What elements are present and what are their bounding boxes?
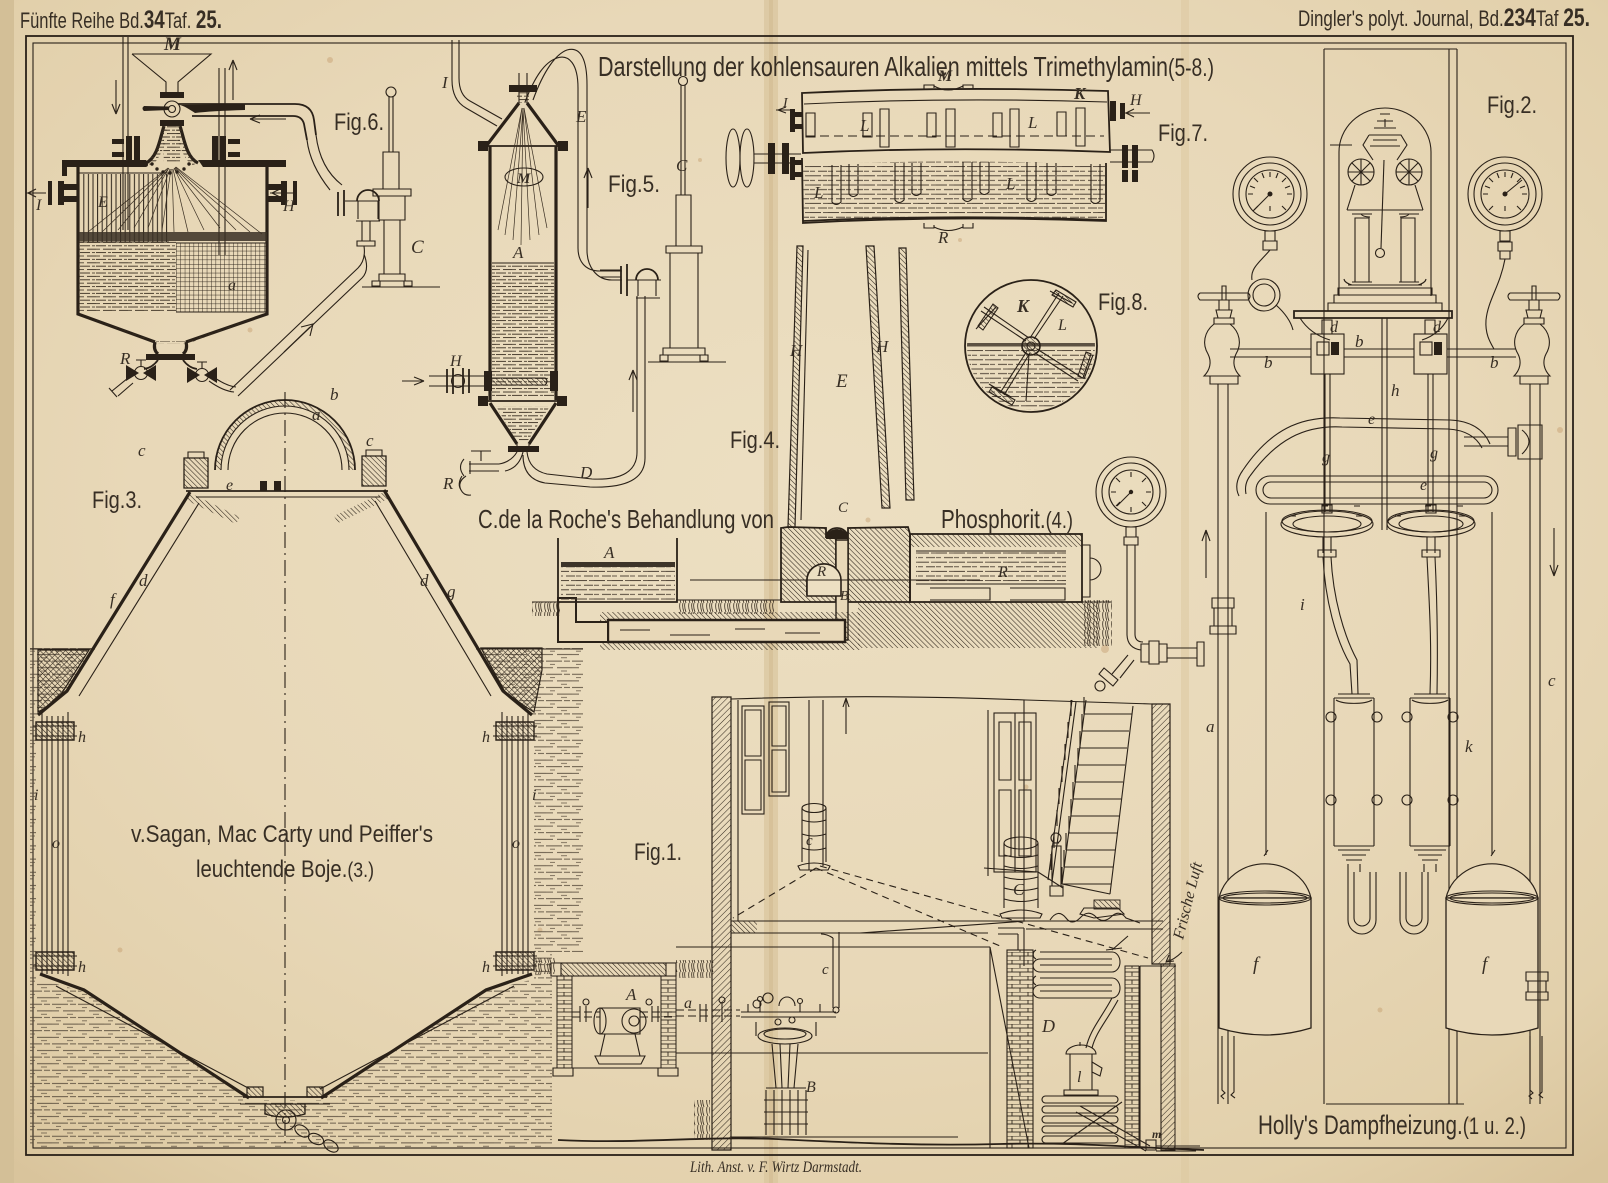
- svg-text:Fig.4.: Fig.4.: [730, 427, 780, 454]
- svg-text:L: L: [1027, 113, 1037, 132]
- svg-text:leuchtende Boje.(3.): leuchtende Boje.(3.): [196, 856, 374, 883]
- svg-text:Fig.2.: Fig.2.: [1487, 92, 1537, 119]
- svg-text:a: a: [312, 405, 321, 424]
- svg-text:e: e: [1368, 411, 1375, 428]
- svg-text:h: h: [78, 959, 86, 976]
- svg-text:a: a: [1206, 717, 1215, 736]
- svg-text:b: b: [1490, 353, 1499, 372]
- svg-text:c: c: [366, 431, 374, 450]
- svg-text:L: L: [1005, 174, 1015, 193]
- svg-text:R: R: [442, 474, 454, 493]
- svg-text:a: a: [684, 995, 692, 1012]
- svg-text:m: m: [1152, 1127, 1161, 1141]
- svg-text:R: R: [119, 349, 131, 368]
- svg-text:Fig.1.: Fig.1.: [634, 839, 682, 866]
- svg-text:d: d: [420, 571, 429, 590]
- svg-text:C: C: [676, 156, 688, 175]
- svg-text:Fünfte Reihe Bd.34Taf. 25.: Fünfte Reihe Bd.34Taf. 25.: [20, 6, 222, 34]
- svg-text:A: A: [603, 543, 615, 562]
- svg-text:Dingler's polyt. Journal, Bd.2: Dingler's polyt. Journal, Bd.234Taf 25.: [1298, 4, 1590, 32]
- svg-text:c: c: [1548, 671, 1556, 690]
- svg-text:h: h: [78, 729, 86, 746]
- svg-text:E: E: [97, 194, 108, 211]
- svg-text:k: k: [1465, 737, 1473, 756]
- svg-text:Darstellung der kohlensauren A: Darstellung der kohlensauren Alkalien mi…: [598, 51, 1214, 82]
- svg-text:c: c: [822, 962, 829, 978]
- svg-text:E: E: [835, 371, 848, 392]
- svg-text:i: i: [1300, 595, 1305, 614]
- svg-text:H: H: [875, 337, 890, 356]
- svg-text:b: b: [330, 385, 339, 404]
- svg-text:Fig.8.: Fig.8.: [1098, 289, 1148, 316]
- svg-text:E: E: [575, 107, 587, 126]
- svg-text:o: o: [52, 835, 60, 852]
- svg-text:i: i: [532, 787, 536, 804]
- svg-text:a: a: [228, 277, 236, 294]
- svg-text:H: H: [1129, 92, 1143, 109]
- svg-text:H: H: [282, 198, 296, 215]
- svg-text:L: L: [859, 116, 869, 135]
- svg-text:C.de la Roche's Behandlung von: C.de la Roche's Behandlung von: [478, 504, 774, 534]
- svg-text:A: A: [625, 985, 637, 1004]
- svg-text:Fig.3.: Fig.3.: [92, 487, 142, 514]
- svg-text:Fig.7.: Fig.7.: [1158, 120, 1208, 147]
- svg-text:c: c: [138, 441, 146, 460]
- svg-text:Lith. Anst. v. F. Wirtz Darmst: Lith. Anst. v. F. Wirtz Darmstadt.: [689, 1159, 862, 1176]
- svg-text:d: d: [1330, 319, 1339, 336]
- svg-text:K: K: [1073, 84, 1087, 103]
- svg-text:i: i: [34, 787, 38, 804]
- svg-text:b: b: [1355, 332, 1364, 351]
- svg-text:e: e: [1420, 477, 1427, 494]
- svg-text:Phosphorit.(4.): Phosphorit.(4.): [941, 504, 1073, 534]
- svg-text:M: M: [516, 171, 531, 187]
- svg-text:h: h: [1391, 381, 1400, 400]
- svg-text:g: g: [447, 582, 456, 601]
- svg-text:H: H: [449, 353, 463, 370]
- svg-text:v.Sagan, Mac Carty und Peiffer: v.Sagan, Mac Carty und Peiffer's: [131, 821, 433, 848]
- svg-text:D: D: [1041, 1016, 1055, 1036]
- svg-text:e: e: [226, 477, 233, 494]
- svg-text:g: g: [1322, 449, 1330, 466]
- svg-text:R: R: [816, 564, 826, 580]
- svg-text:B: B: [840, 589, 849, 604]
- svg-text:R: R: [937, 228, 949, 247]
- svg-text:K: K: [1016, 296, 1031, 316]
- svg-text:R: R: [997, 564, 1008, 581]
- svg-text:l: l: [1077, 1069, 1082, 1086]
- svg-text:H: H: [789, 341, 804, 360]
- svg-text:C: C: [838, 500, 849, 516]
- svg-text:C: C: [1013, 880, 1025, 899]
- svg-text:h: h: [482, 959, 490, 976]
- svg-text:c: c: [806, 833, 813, 849]
- svg-text:M: M: [163, 34, 182, 55]
- svg-text:d: d: [1433, 319, 1442, 336]
- svg-text:h: h: [482, 729, 490, 746]
- svg-text:Fig.6.: Fig.6.: [334, 109, 384, 136]
- svg-text:L: L: [813, 183, 823, 202]
- svg-text:A: A: [512, 243, 524, 262]
- svg-text:D: D: [579, 463, 593, 482]
- svg-text:o: o: [512, 835, 520, 852]
- svg-text:d: d: [139, 571, 148, 590]
- svg-text:M: M: [937, 68, 953, 85]
- svg-text:g: g: [1430, 445, 1438, 462]
- svg-text:Fig.5.: Fig.5.: [608, 171, 660, 198]
- svg-text:I: I: [35, 197, 42, 214]
- svg-text:C: C: [411, 237, 424, 258]
- svg-text:b: b: [1264, 353, 1273, 372]
- svg-text:L: L: [1057, 317, 1067, 334]
- svg-text:Holly's Dampfheizung.(1 u. 2.): Holly's Dampfheizung.(1 u. 2.): [1258, 1110, 1526, 1140]
- svg-text:B: B: [806, 1079, 816, 1096]
